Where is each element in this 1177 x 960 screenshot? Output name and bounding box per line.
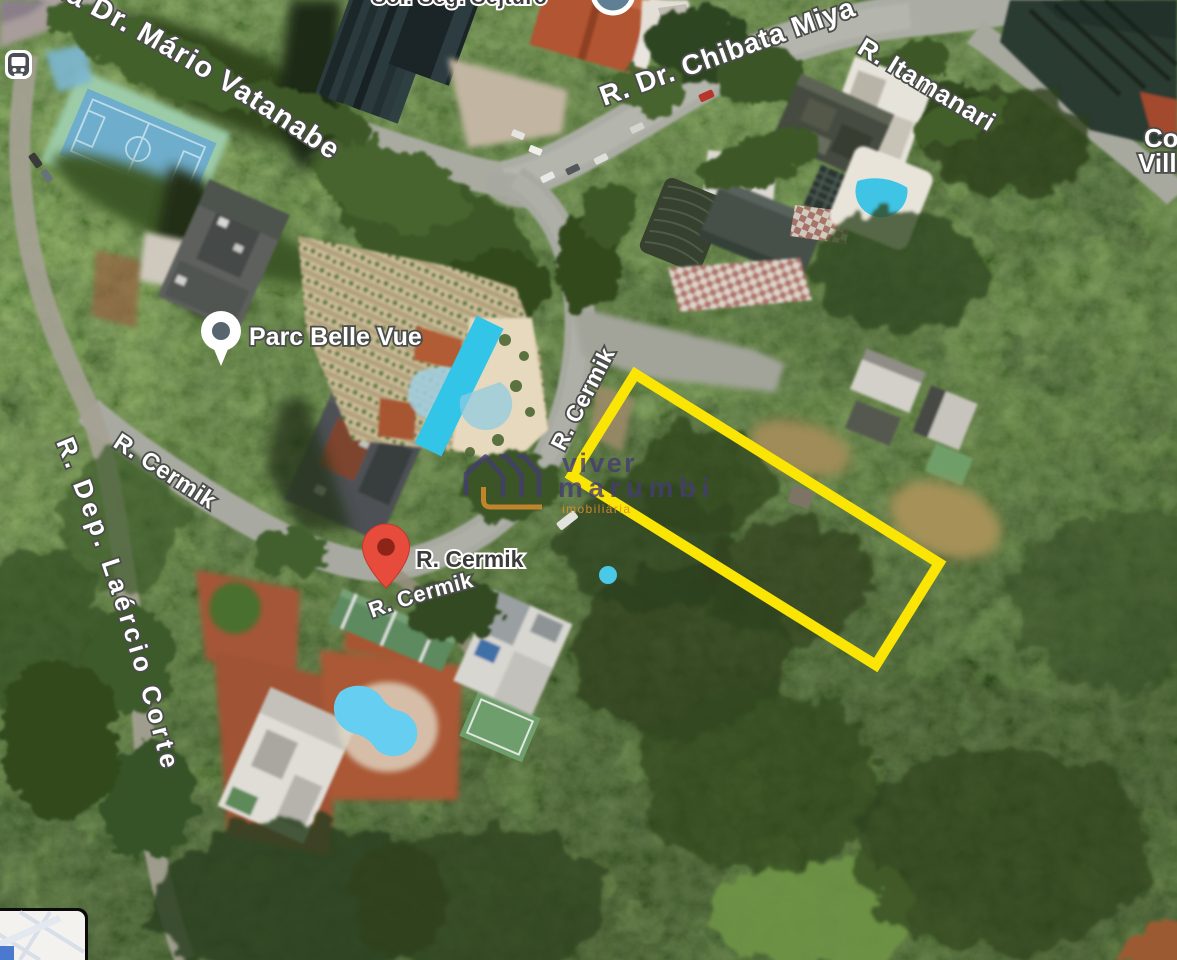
svg-text:Sol. Seg. Sejturo: Sol. Seg. Sejturo (372, 0, 547, 9)
svg-text:imobiliária: imobiliária (562, 502, 631, 516)
svg-text:Villa: Villa (1138, 148, 1177, 178)
svg-text:marumbi: marumbi (558, 472, 715, 503)
svg-text:Parc Belle Vue: Parc Belle Vue (249, 323, 422, 351)
svg-text:R. Cermik: R. Cermik (416, 546, 524, 572)
